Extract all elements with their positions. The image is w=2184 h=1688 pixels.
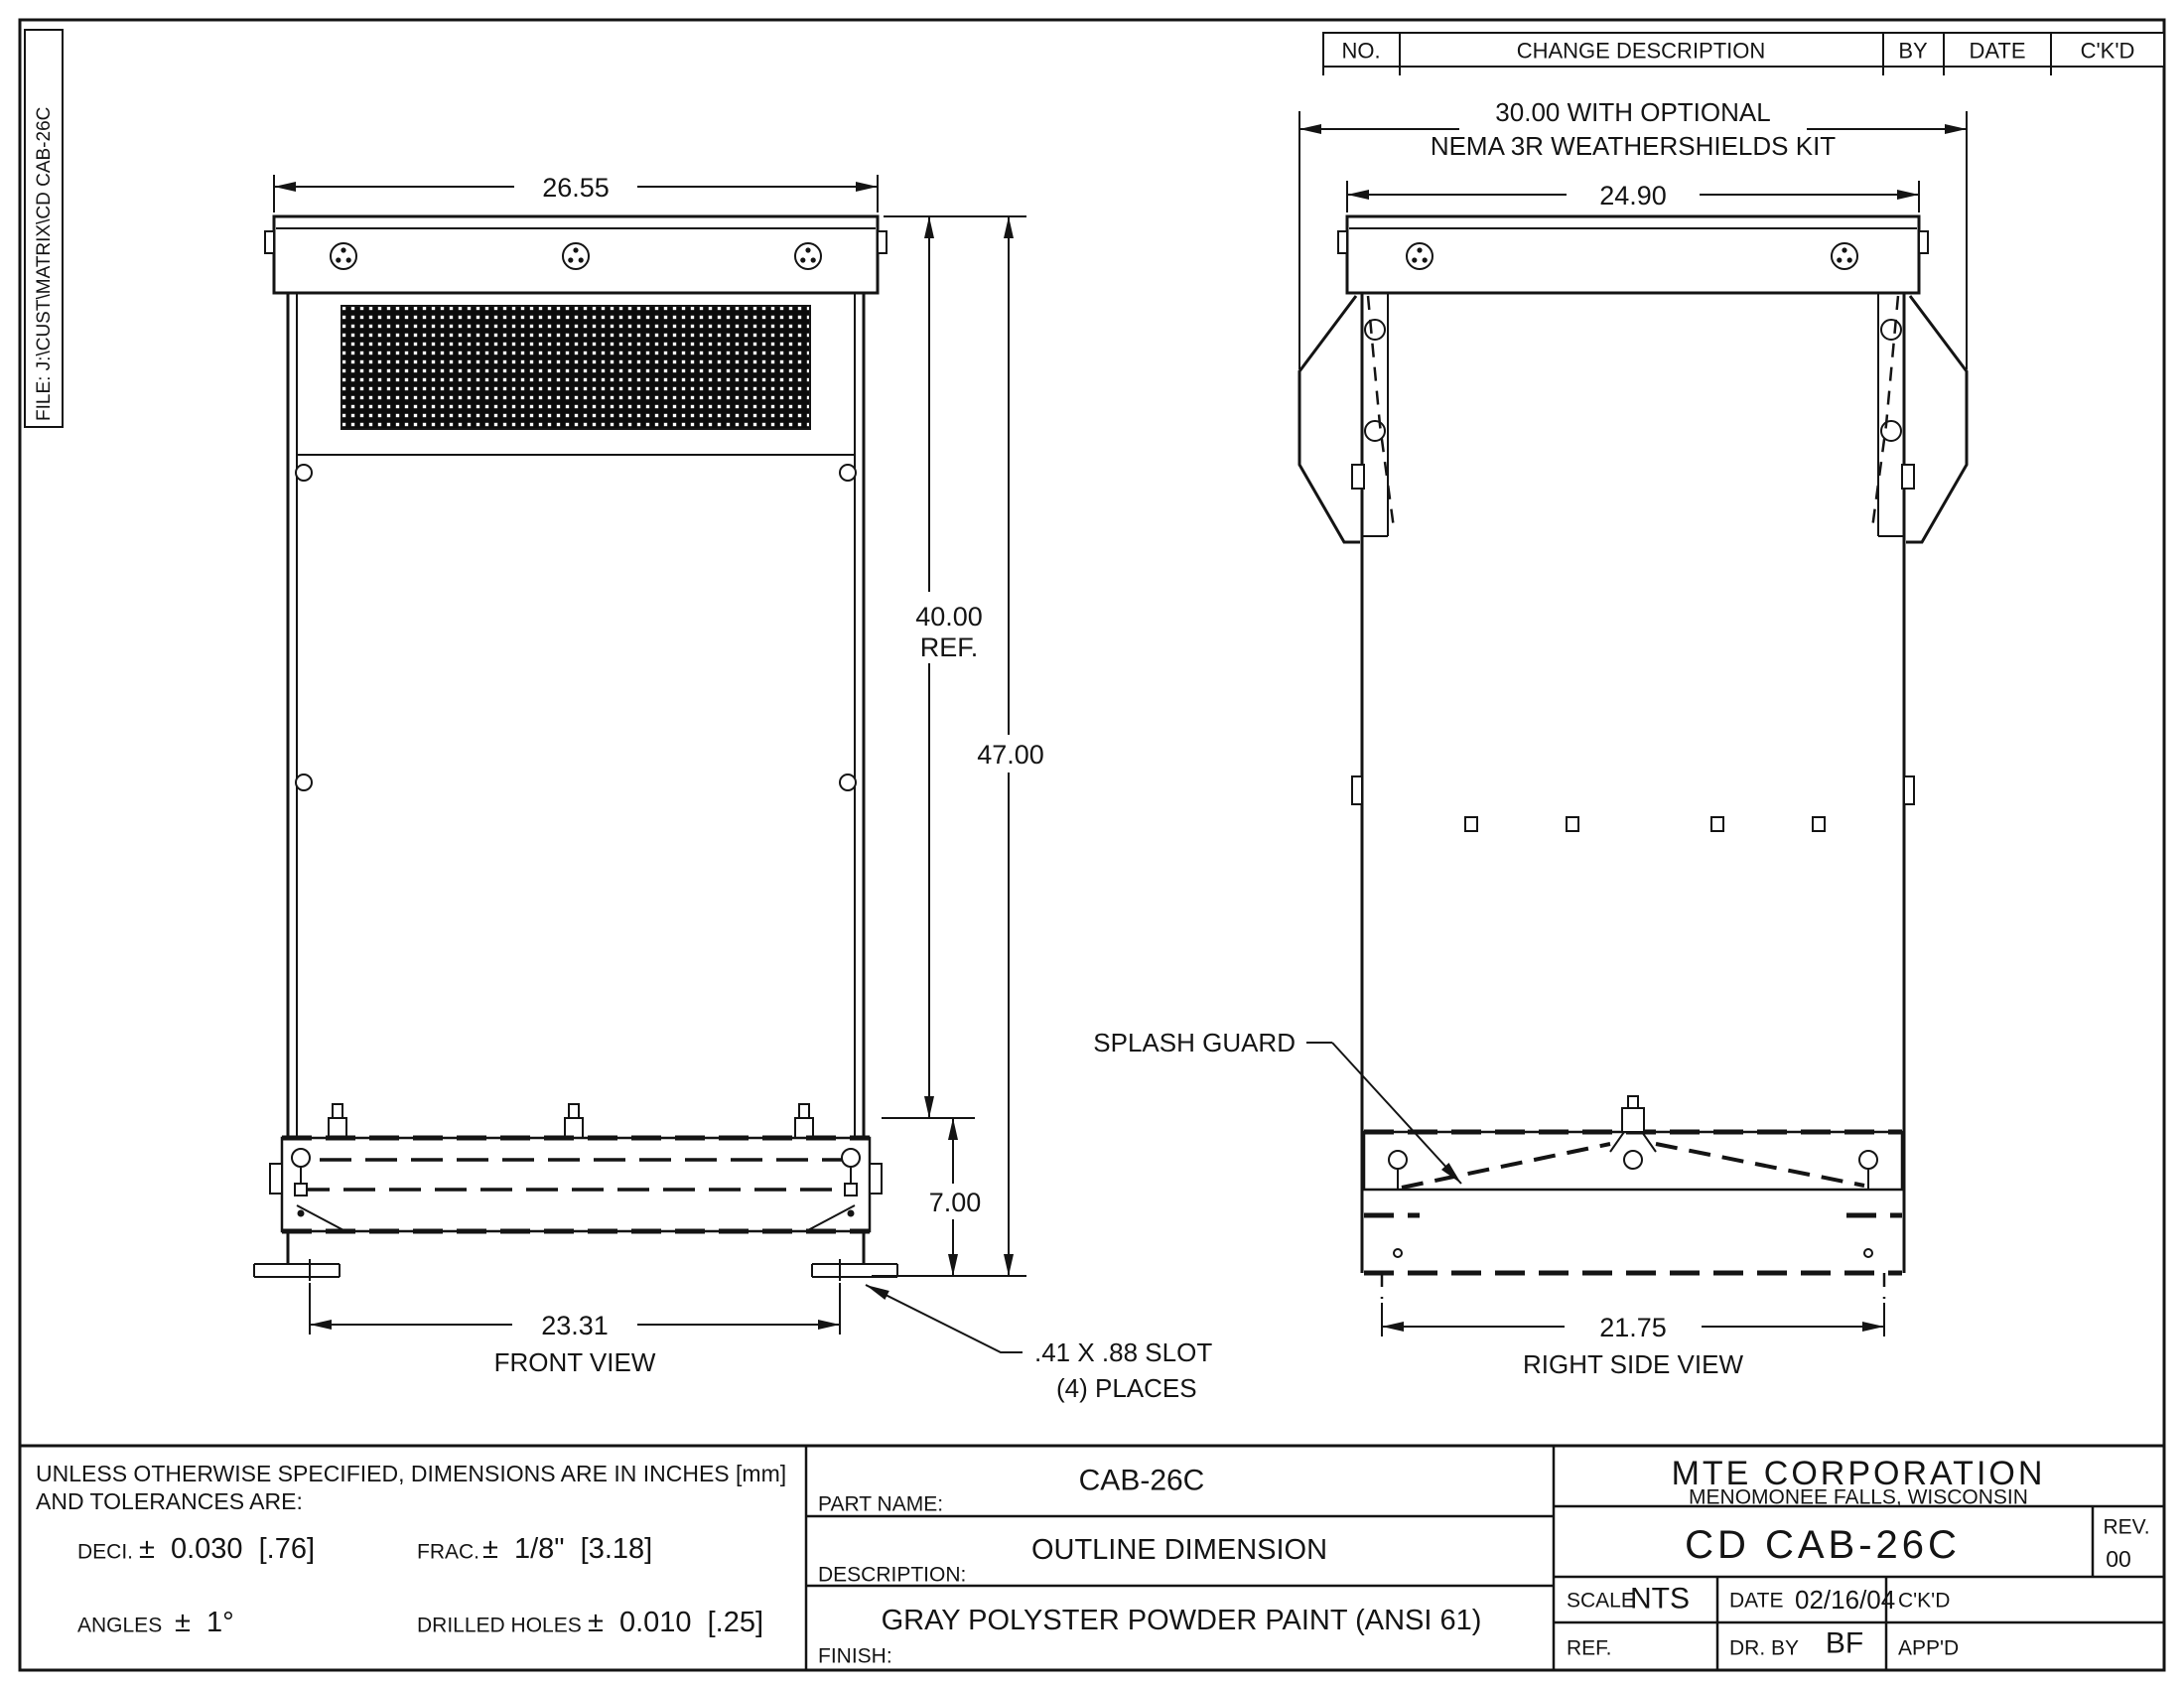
company-location: MENOMONEE FALLS, WISCONSIN — [1689, 1486, 2028, 1509]
tolerance-block: UNLESS OTHERWISE SPECIFIED, DIMENSIONS A… — [36, 1461, 786, 1638]
vent-grille — [341, 306, 810, 429]
splash-guard-label: SPLASH GUARD — [1093, 1028, 1296, 1057]
panel-hole — [1711, 817, 1723, 831]
dim-side-top-width: 24.90 — [1599, 181, 1667, 211]
door-hole — [840, 465, 856, 481]
front-mounting-feet — [254, 1259, 897, 1281]
screw-icon — [795, 243, 821, 269]
revision-table: NO. CHANGE DESCRIPTION BY DATE C'K'D — [1323, 33, 2164, 75]
weathershield-note-line2: NEMA 3R WEATHERSHIELDS KIT — [1431, 131, 1836, 161]
side-view-title: RIGHT SIDE VIEW — [1523, 1349, 1743, 1379]
approved-label: APP'D — [1898, 1637, 1959, 1660]
file-path-label: FILE: J:\CUST\MATRIX\CD CAB-26C — [25, 30, 63, 427]
front-splash-band — [270, 1104, 882, 1231]
angles-label: ANGLES — [77, 1615, 162, 1637]
rev-label: REV. — [2103, 1516, 2149, 1539]
door-hole — [296, 465, 312, 481]
dim-splash-height: 7.00 — [929, 1188, 982, 1217]
dim-side-feet-span: 21.75 — [1599, 1313, 1667, 1342]
panel-hole — [1813, 817, 1825, 831]
side-splash-band — [1364, 1096, 1902, 1273]
angles-value: ± 1° — [175, 1607, 234, 1638]
date-label: DATE — [1729, 1590, 1783, 1613]
screw-icon — [1832, 243, 1857, 269]
part-name-label: PART NAME: — [818, 1493, 943, 1516]
screw-icon — [563, 243, 589, 269]
deci-label: DECI. — [77, 1541, 133, 1564]
front-view — [254, 216, 897, 1281]
part-name-value: CAB-26C — [1079, 1465, 1205, 1497]
door-hole — [296, 774, 312, 790]
dim-height-ref-suffix: REF. — [920, 633, 979, 662]
drawn-by-label: DR. BY — [1729, 1637, 1799, 1660]
scale-label: SCALE — [1567, 1590, 1635, 1613]
title-block: UNLESS OTHERWISE SPECIFIED, DIMENSIONS A… — [20, 1446, 2164, 1670]
slot-note-line1: .41 X .88 SLOT — [1034, 1337, 1212, 1367]
ref-label: REF. — [1567, 1637, 1612, 1660]
dim-height-ref: 40.00 — [915, 602, 983, 632]
slot-note-line2: (4) PLACES — [1056, 1373, 1197, 1403]
finish-label: FINISH: — [818, 1645, 892, 1668]
rev-value: 00 — [2106, 1546, 2131, 1572]
weathershield-left — [1299, 293, 1394, 542]
right-side-view — [1299, 216, 1967, 1273]
drilled-holes-label: DRILLED HOLES — [417, 1615, 582, 1637]
drawing-number: CD CAB-26C — [1685, 1523, 1961, 1567]
frac-label: FRAC. — [417, 1541, 479, 1564]
tolerance-line2: AND TOLERANCES ARE: — [36, 1488, 303, 1514]
company-block: MTE CORPORATION MENOMONEE FALLS, WISCONS… — [1567, 1455, 2150, 1660]
drilled-holes-value: ± 0.010 [.25] — [588, 1607, 763, 1638]
dim-top-width: 26.55 — [542, 173, 610, 203]
panel-hole — [1465, 817, 1477, 831]
weathershield-note-line1: 30.00 WITH OPTIONAL — [1495, 97, 1770, 127]
part-info-block: CAB-26C PART NAME: OUTLINE DIMENSION DES… — [818, 1465, 1481, 1668]
finish-value: GRAY POLYSTER POWDER PAINT (ANSI 61) — [882, 1605, 1482, 1636]
deci-value: ± 0.030 [.76] — [139, 1533, 315, 1565]
dim-height-total: 47.00 — [977, 740, 1044, 770]
description-value: OUTLINE DIMENSION — [1031, 1534, 1327, 1566]
weathershield-right — [1872, 293, 1967, 542]
dim-feet-span: 23.31 — [541, 1311, 609, 1340]
front-view-title: FRONT VIEW — [494, 1347, 656, 1377]
screw-icon — [331, 243, 356, 269]
col-change-description: CHANGE DESCRIPTION — [1517, 39, 1766, 64]
screw-icon — [1407, 243, 1433, 269]
col-by: BY — [1898, 39, 1928, 64]
col-date: DATE — [1969, 39, 2025, 64]
scale-value: NTS — [1630, 1583, 1690, 1616]
door-hole — [840, 774, 856, 790]
panel-hole — [1567, 817, 1578, 831]
col-ckd: C'K'D — [2081, 39, 2135, 64]
ckd-label: C'K'D — [1898, 1590, 1950, 1613]
drawn-by-value: BF — [1826, 1627, 1863, 1660]
col-no: NO. — [1341, 39, 1380, 64]
frac-value: ± 1/8" [3.18] — [482, 1533, 652, 1565]
file-path-text: FILE: J:\CUST\MATRIX\CD CAB-26C — [34, 107, 55, 421]
date-value: 02/16/04 — [1795, 1585, 1895, 1615]
description-label: DESCRIPTION: — [818, 1564, 966, 1587]
tolerance-line1: UNLESS OTHERWISE SPECIFIED, DIMENSIONS A… — [36, 1461, 786, 1486]
drawing-sheet: FILE: J:\CUST\MATRIX\CD CAB-26C NO. CHAN… — [0, 0, 2184, 1688]
